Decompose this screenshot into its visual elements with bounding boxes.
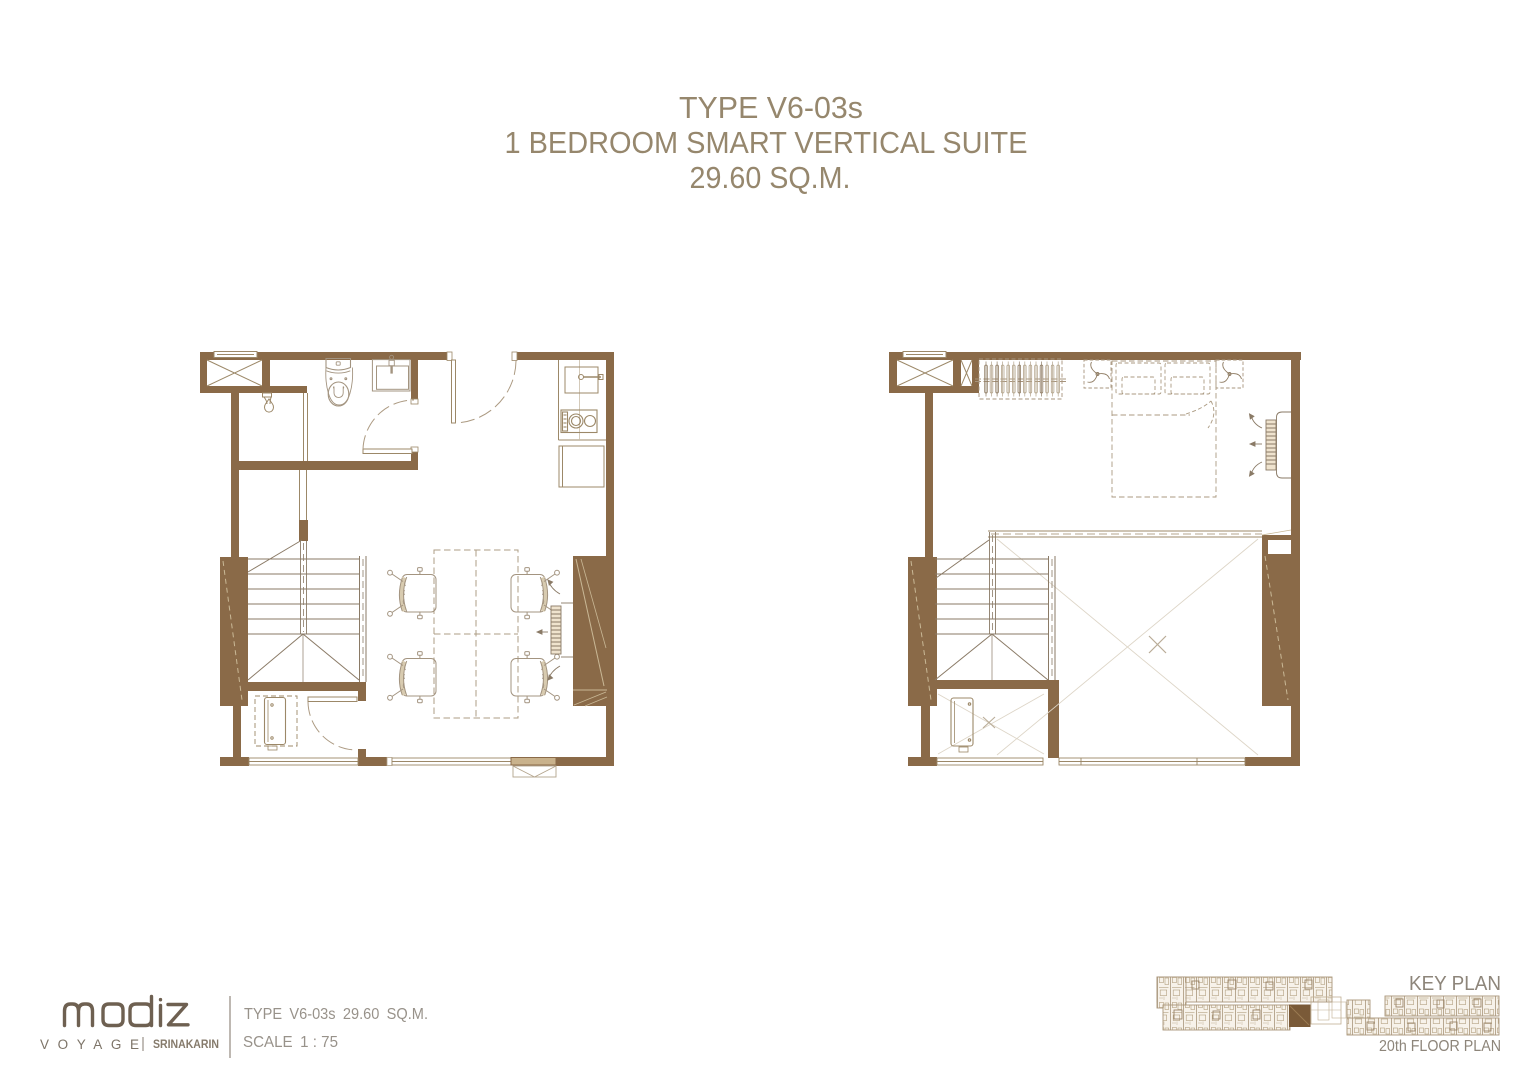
svg-text:SRINAKARIN: SRINAKARIN	[153, 1039, 219, 1051]
svg-text:20th FLOOR PLAN: 20th FLOOR PLAN	[1379, 1038, 1501, 1055]
svg-text:29.60 SQ.M.: 29.60 SQ.M.	[690, 160, 851, 195]
svg-text:1 BEDROOM SMART VERTICAL SUITE: 1 BEDROOM SMART VERTICAL SUITE	[505, 125, 1028, 160]
svg-text:TYPE V6-03s: TYPE V6-03s	[679, 90, 863, 125]
svg-text:KEY PLAN: KEY PLAN	[1409, 972, 1501, 995]
svg-text:SCALE 1 : 75: SCALE 1 : 75	[243, 1034, 338, 1051]
svg-text:VOYAGE: VOYAGE	[40, 1037, 148, 1052]
svg-text:TYPE V6-03s 29.60 SQ.M.: TYPE V6-03s 29.60 SQ.M.	[244, 1006, 428, 1023]
